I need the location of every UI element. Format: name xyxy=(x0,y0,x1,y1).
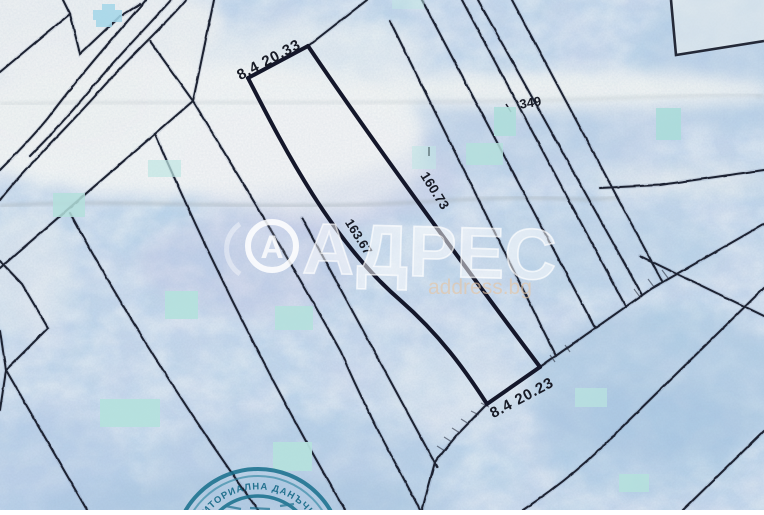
svg-text:А: А xyxy=(260,229,283,265)
svg-text:address.bg: address.bg xyxy=(428,276,532,299)
